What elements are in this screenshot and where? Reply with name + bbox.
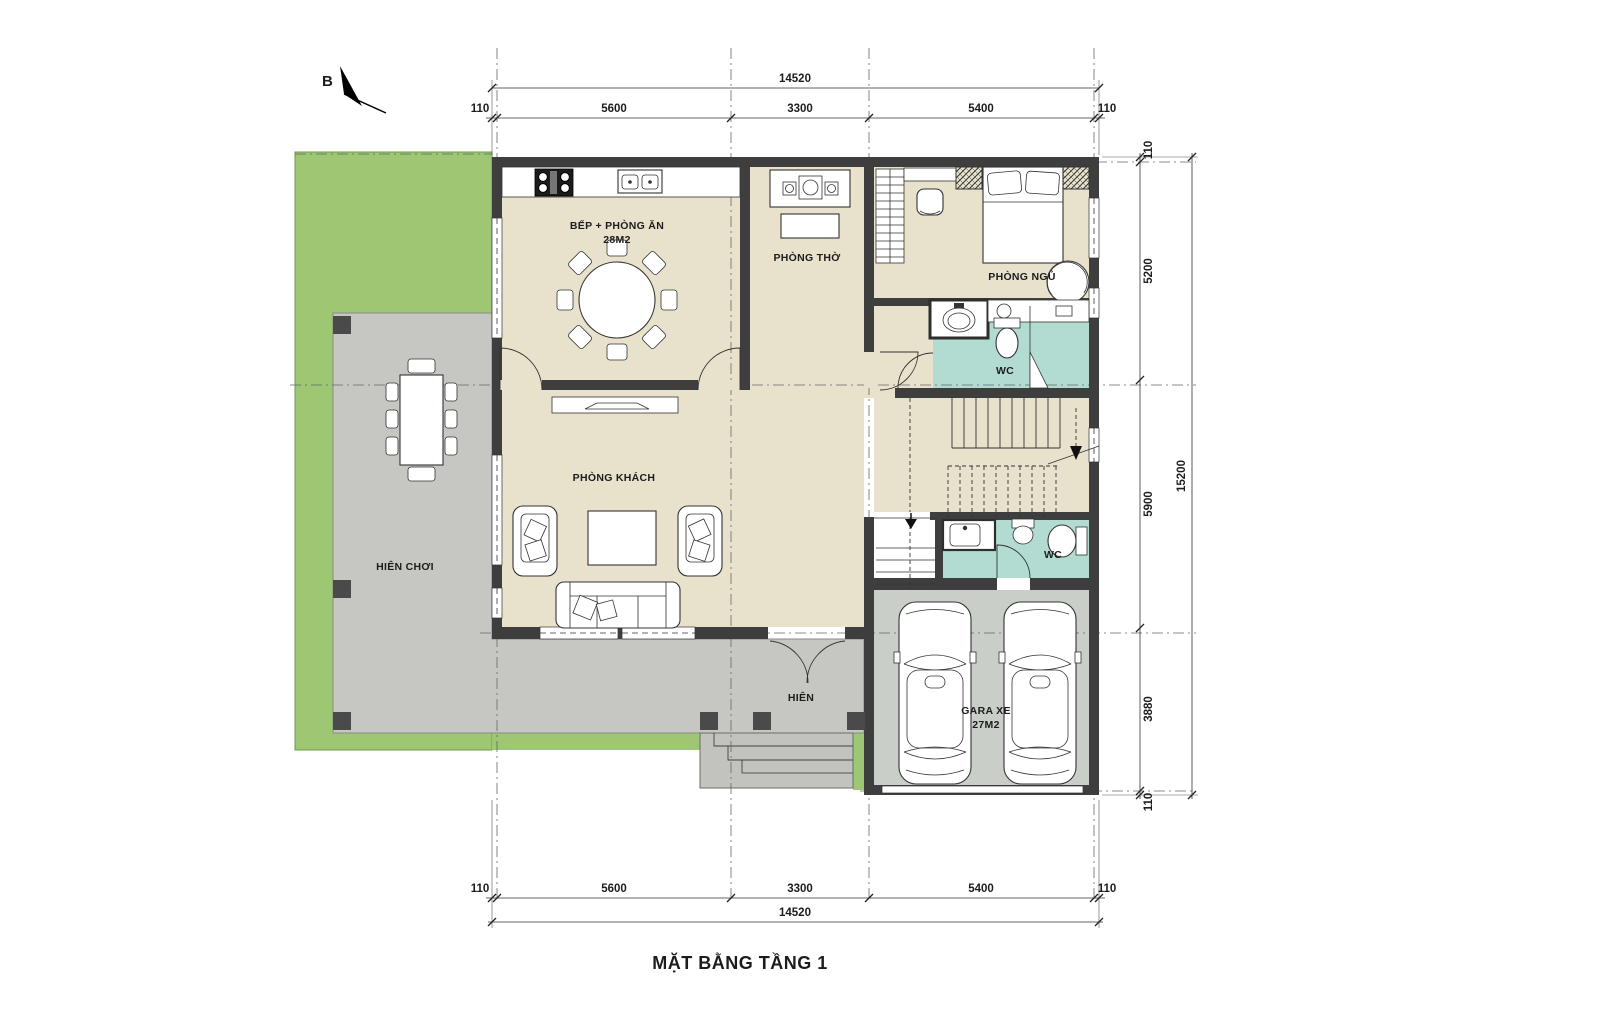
window-bedroom-right-b xyxy=(1089,288,1099,318)
porch-label: HIÊN xyxy=(788,691,814,704)
column xyxy=(333,316,351,334)
window-living-left-b xyxy=(492,588,502,618)
wc2-sink-counter xyxy=(943,520,995,550)
dim-bottom-s1: 5600 xyxy=(601,883,627,895)
entry-steps xyxy=(700,733,853,788)
north-arrow-icon: B xyxy=(322,66,386,113)
tv-icon xyxy=(585,403,649,409)
drawing-title: MẶT BẰNG TẦNG 1 xyxy=(652,952,828,973)
stove-icon xyxy=(535,169,573,196)
dim-top-s0: 110 xyxy=(471,103,490,115)
counter-bowl-icon xyxy=(997,304,1011,318)
dim-top-s1: 5600 xyxy=(601,103,627,115)
dim-right-s0: 110 xyxy=(1143,141,1155,160)
dimensions-right: 110 5200 5900 3880 110 15200 xyxy=(1102,141,1198,812)
censer-icon xyxy=(803,180,818,195)
window-living-left-a xyxy=(492,455,502,565)
dim-top-s4: 110 xyxy=(1098,103,1117,115)
kitchen-door-gap-right xyxy=(698,380,740,390)
worship-label: PHÒNG THỜ xyxy=(773,251,840,264)
dimensions-bottom: 110 5600 3300 5400 110 14520 xyxy=(471,800,1117,928)
column-hatched xyxy=(956,167,982,189)
worship-furniture xyxy=(770,170,850,238)
altar-table xyxy=(781,214,839,238)
dim-bottom-total: 14520 xyxy=(779,907,811,919)
double-bed xyxy=(983,167,1063,263)
dim-bottom-s2: 3300 xyxy=(787,883,813,895)
bedroom-shelf xyxy=(904,168,956,181)
armchair-right xyxy=(678,506,722,576)
tv-console xyxy=(552,397,678,413)
coffee-table xyxy=(588,511,656,565)
dim-right-s4: 110 xyxy=(1143,793,1155,812)
column xyxy=(753,712,771,730)
dim-top-s3: 5400 xyxy=(968,103,994,115)
kitchen-label: BẾP + PHÒNG ĂN xyxy=(570,219,664,232)
window-living-bottom-b xyxy=(622,627,695,639)
column xyxy=(700,712,718,730)
column xyxy=(333,580,351,598)
kitchen-sink-icon xyxy=(618,170,662,193)
garage-label: GARA XE xyxy=(961,705,1011,717)
living-label: PHÒNG KHÁCH xyxy=(573,471,656,484)
column-hatched xyxy=(1063,167,1089,189)
dim-top-total: 14520 xyxy=(779,73,811,85)
window-stairs-right xyxy=(1089,428,1099,462)
wc1-label: WC xyxy=(996,365,1014,377)
toilet-icon xyxy=(994,318,1020,358)
kitchen-area-label: 28M2 xyxy=(603,234,630,246)
dim-right-total: 15200 xyxy=(1176,460,1188,492)
wardrobe xyxy=(876,169,904,263)
bedroom-stool xyxy=(917,189,943,215)
dimensions-top: 14520 110 5600 3300 5400 110 xyxy=(471,73,1117,155)
car xyxy=(894,602,976,784)
kitchen-door-gap-left xyxy=(500,380,542,390)
dim-right-s2: 5900 xyxy=(1143,491,1155,517)
window-bedroom-right-a xyxy=(1089,198,1099,258)
floor-plan-canvas: 14520 110 5600 3300 5400 110 110 5600 33… xyxy=(0,0,1600,1030)
bedroom-door-gap xyxy=(864,352,874,388)
floor-plan-drawing: 14520 110 5600 3300 5400 110 110 5600 33… xyxy=(0,0,1600,1030)
urinal-icon xyxy=(1012,519,1034,544)
car xyxy=(999,602,1081,784)
armchair-left xyxy=(513,506,557,576)
sofa xyxy=(556,582,680,628)
dim-bottom-s3: 5400 xyxy=(968,883,994,895)
dim-right-s3: 3880 xyxy=(1143,696,1155,722)
window-kitchen-left xyxy=(492,218,502,338)
dim-bottom-s0: 110 xyxy=(471,883,490,895)
wc1-vanity xyxy=(930,300,988,338)
play-porch-label: HIÊN CHƠI xyxy=(376,560,434,573)
garage-area-label: 27M2 xyxy=(972,719,999,731)
stair-hall-floor xyxy=(874,398,1089,512)
bedroom-label: PHÒNG NGỦ xyxy=(988,270,1055,283)
garage-door xyxy=(882,786,1083,793)
window-living-bottom-a xyxy=(540,627,618,639)
soap-dish-icon xyxy=(1056,306,1072,316)
dim-top-s2: 3300 xyxy=(787,103,813,115)
north-label: B xyxy=(322,73,333,90)
dim-bottom-s4: 110 xyxy=(1098,883,1117,895)
dim-right-s1: 5200 xyxy=(1143,258,1155,284)
wc2-label: WC xyxy=(1044,549,1062,561)
wc1-vestibule-floor xyxy=(874,306,933,388)
outdoor-table xyxy=(400,375,443,465)
column xyxy=(333,712,351,730)
column xyxy=(847,712,865,730)
